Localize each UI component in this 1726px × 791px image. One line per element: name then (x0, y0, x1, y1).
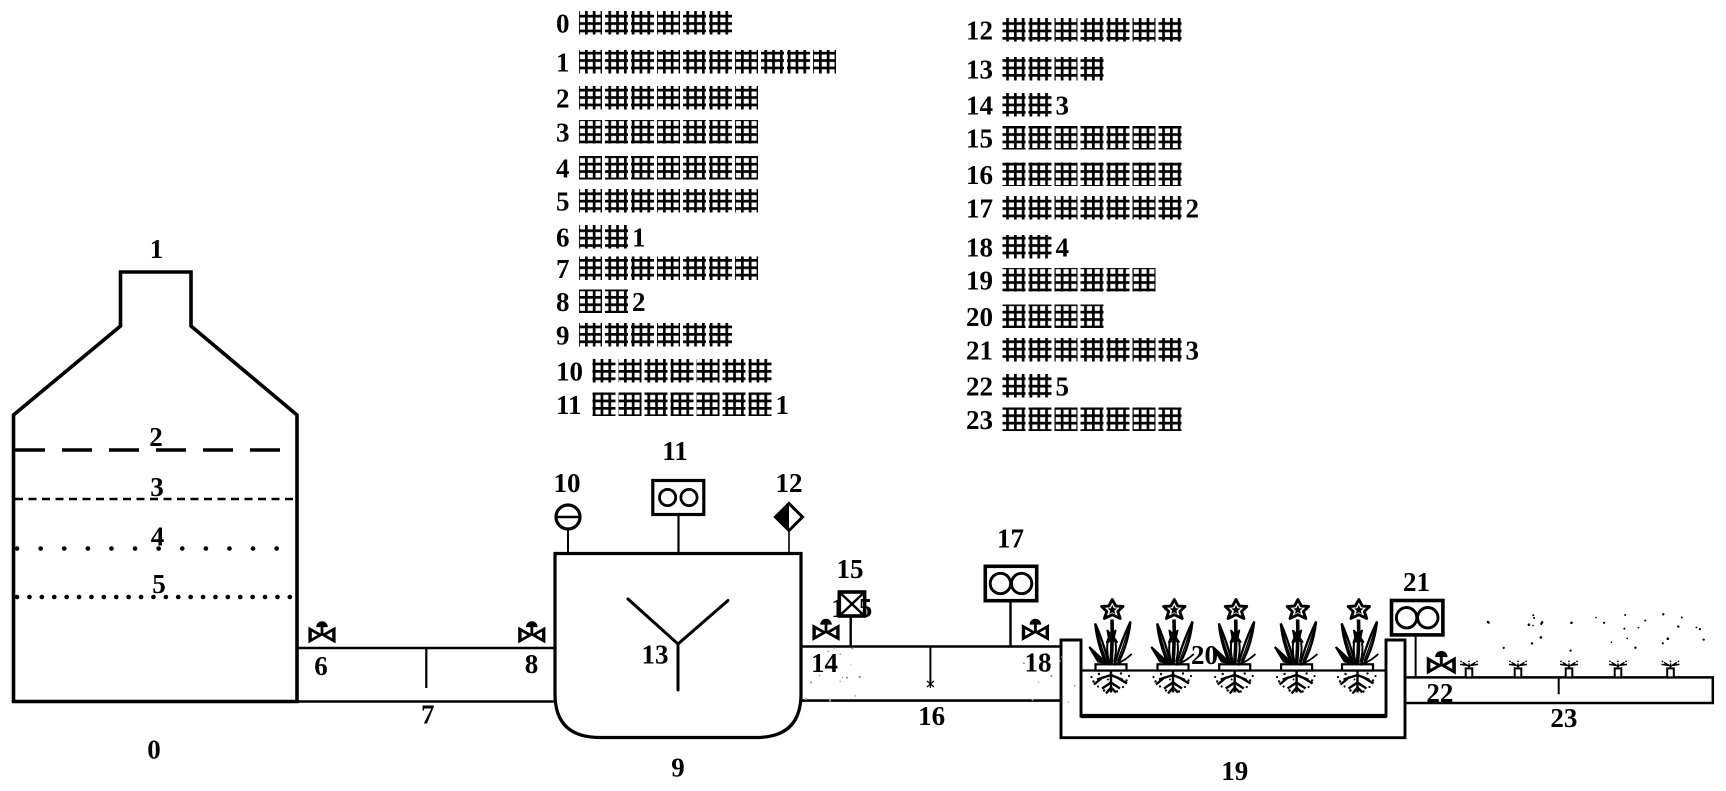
svg-text:3: 3 (150, 472, 164, 502)
svg-text:0: 0 (147, 735, 161, 765)
svg-text:21: 21 (966, 336, 993, 366)
svg-text:5: 5 (556, 187, 570, 217)
svg-text:12: 12 (966, 16, 993, 46)
svg-text:2: 2 (632, 287, 646, 317)
svg-text:19: 19 (1221, 756, 1248, 786)
svg-text:20: 20 (1191, 640, 1218, 670)
svg-text:1: 1 (776, 390, 790, 420)
svg-text:2: 2 (556, 84, 570, 114)
svg-text:1: 1 (632, 223, 646, 253)
svg-text:10: 10 (556, 357, 583, 387)
svg-text:3: 3 (1056, 91, 1070, 121)
svg-text:15: 15 (837, 554, 864, 584)
svg-text:4: 4 (151, 522, 165, 552)
svg-text:12: 12 (776, 468, 803, 498)
svg-text:22: 22 (1426, 678, 1453, 708)
svg-text:19: 19 (966, 266, 993, 296)
svg-text:4: 4 (1056, 233, 1070, 263)
svg-text:5: 5 (1056, 372, 1070, 402)
svg-text:21: 21 (1403, 567, 1430, 597)
svg-text:14: 14 (966, 91, 993, 121)
svg-text:4: 4 (556, 154, 570, 184)
svg-text:15: 15 (966, 124, 993, 154)
svg-text:18: 18 (1025, 648, 1052, 678)
svg-text:6: 6 (556, 223, 570, 253)
svg-text:13: 13 (966, 55, 993, 85)
svg-text:16: 16 (966, 160, 993, 190)
svg-text:9: 9 (556, 321, 570, 351)
svg-text:9: 9 (671, 753, 685, 783)
svg-text:16: 16 (918, 701, 945, 731)
svg-text:23: 23 (966, 405, 993, 435)
svg-text:11: 11 (662, 436, 688, 466)
svg-text:23: 23 (1550, 703, 1577, 733)
svg-text:8: 8 (525, 649, 539, 679)
svg-text:0: 0 (556, 9, 570, 39)
svg-text:1: 1 (150, 234, 164, 264)
svg-text:8: 8 (556, 287, 570, 317)
svg-text:10: 10 (554, 468, 581, 498)
svg-text:5: 5 (152, 569, 166, 599)
svg-text:6: 6 (314, 651, 328, 681)
svg-text:13: 13 (642, 640, 669, 670)
svg-text:2: 2 (1186, 194, 1200, 224)
svg-text:17: 17 (966, 194, 993, 224)
svg-text:7: 7 (421, 700, 435, 730)
svg-text:18: 18 (966, 233, 993, 263)
svg-text:20: 20 (966, 302, 993, 332)
svg-text:22: 22 (966, 372, 993, 402)
svg-text:11: 11 (556, 390, 582, 420)
svg-text:7: 7 (556, 254, 570, 284)
svg-text:1: 1 (556, 48, 570, 78)
svg-text:17: 17 (997, 523, 1024, 553)
svg-text:3: 3 (1186, 336, 1200, 366)
svg-text:2: 2 (149, 422, 163, 452)
svg-text:14: 14 (811, 648, 838, 678)
svg-text:3: 3 (556, 118, 570, 148)
